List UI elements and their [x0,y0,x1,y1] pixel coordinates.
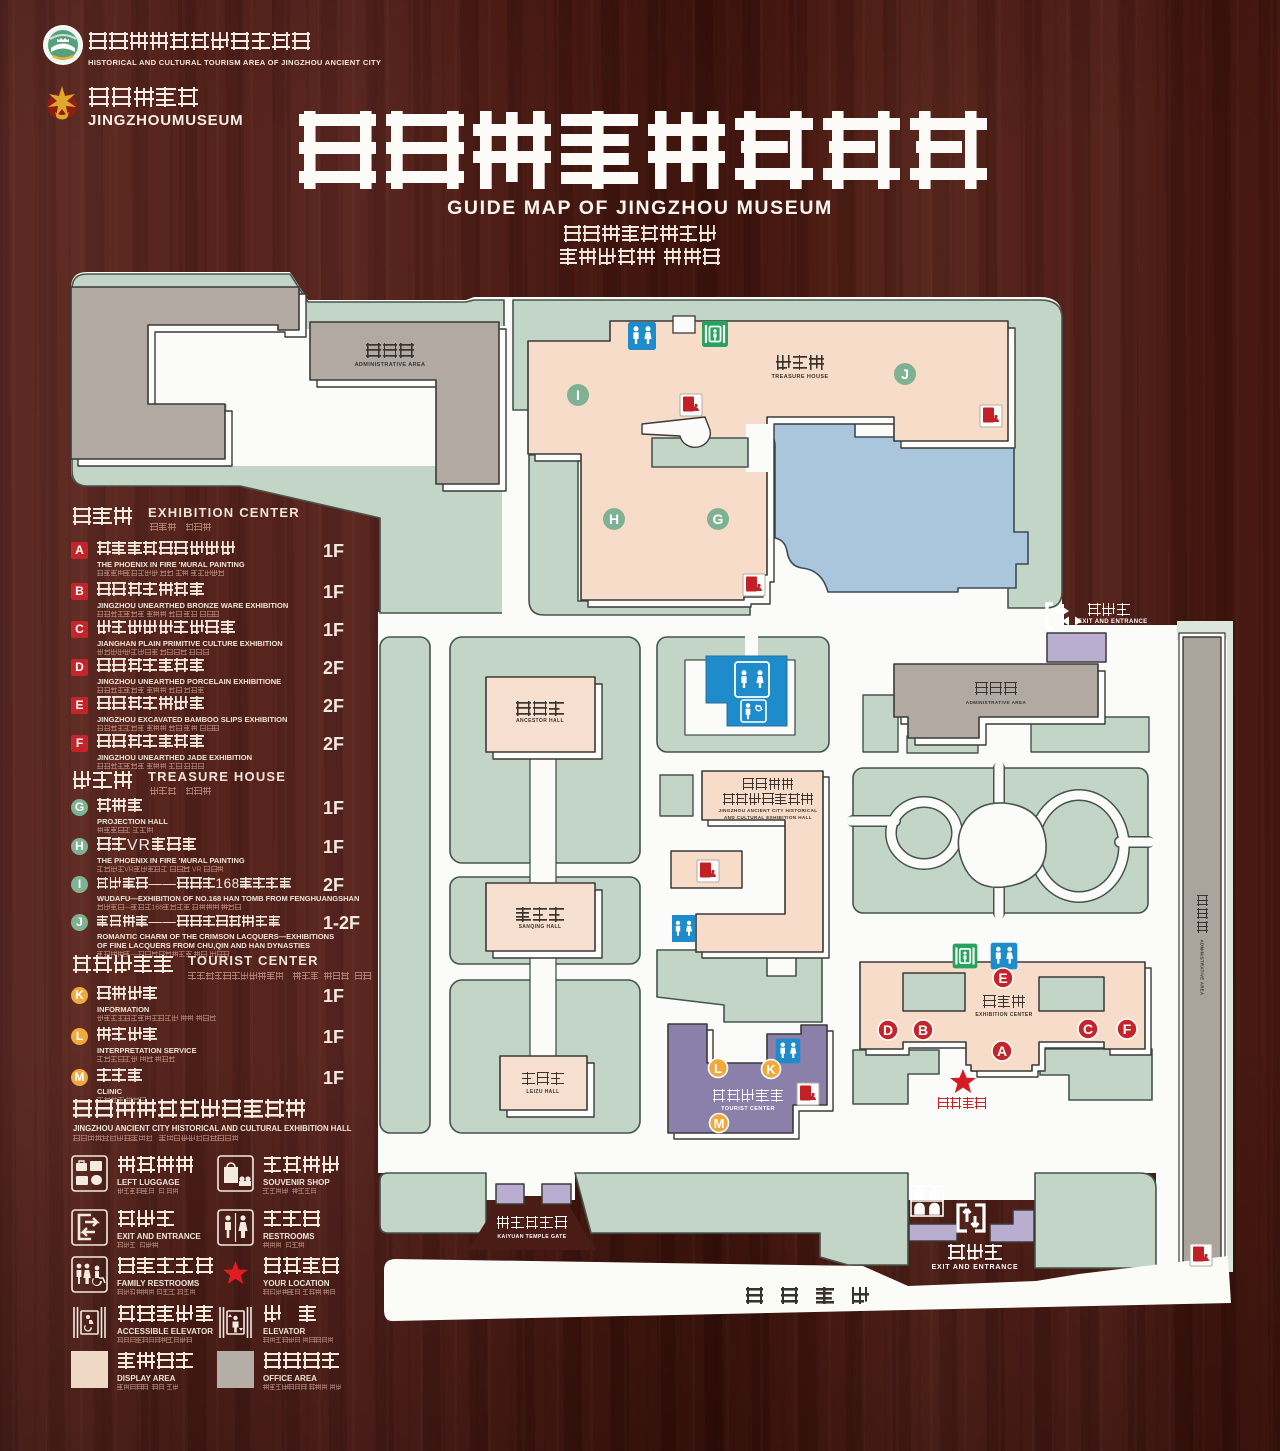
svg-text:E: E [998,970,1007,986]
svg-text:G: G [713,511,724,527]
svg-text:C: C [1083,1021,1093,1037]
svg-text:H: H [609,511,619,527]
svg-text:K: K [766,1062,776,1077]
svg-text:B: B [918,1022,928,1038]
svg-text:A: A [997,1043,1007,1059]
svg-text:M: M [714,1116,725,1131]
svg-text:J: J [901,366,909,382]
svg-text:D: D [883,1022,893,1038]
svg-text:I: I [576,387,580,403]
svg-text:F: F [1123,1021,1132,1037]
svg-text:L: L [714,1061,722,1076]
